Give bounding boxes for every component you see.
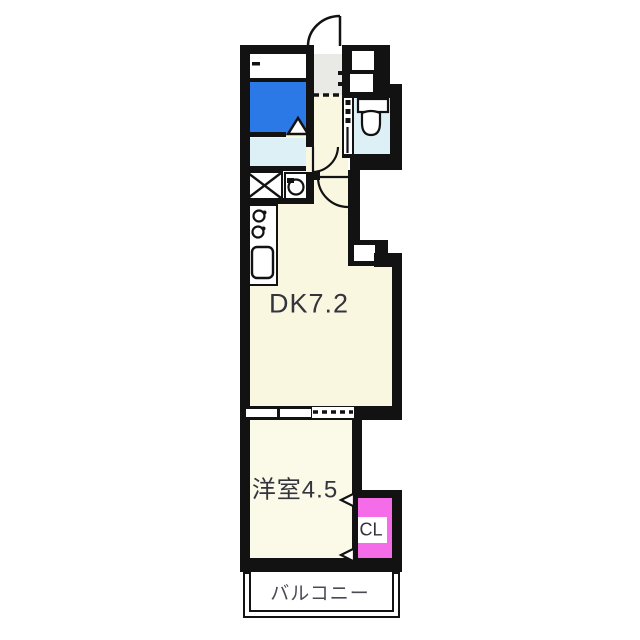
dk-floor-east (348, 266, 392, 408)
room-label-balcony: バルコニー (270, 579, 370, 606)
wall-toilet-bottom (350, 154, 402, 170)
kitchen-counter (248, 204, 278, 286)
floorplan-page: { "floorplan": { "labels": { "dk": "DK7.… (0, 0, 640, 640)
sliding-window-1 (246, 409, 277, 417)
wall-under-bath (250, 132, 286, 137)
wall-hall-west (306, 45, 314, 147)
storage-niche-2 (350, 74, 373, 92)
wall-washroom-shelf (246, 166, 306, 171)
wall-closet-left (352, 498, 358, 558)
wall-left (240, 45, 250, 572)
bathtub-icon (250, 82, 306, 134)
wall-east-mid (348, 170, 360, 242)
pipe-space-niche (354, 245, 375, 261)
wall-under-window (250, 78, 306, 82)
washroom-floor (250, 138, 306, 168)
room-label-closet: CL (359, 520, 382, 541)
wall-hall-south-stub (306, 172, 320, 180)
toilet-door-strip (344, 98, 352, 154)
washing-machine-icon (246, 171, 283, 200)
wall-bottom (240, 558, 402, 572)
entrance-door-icon (308, 16, 340, 46)
wall-dk-east (392, 260, 402, 410)
room-label-western: 洋室4.5 (252, 470, 338, 505)
storage-niche-1 (352, 51, 374, 70)
entrance-opening (312, 45, 343, 54)
sliding-window-2 (280, 409, 311, 417)
wall-kitchen-top (240, 198, 306, 204)
toilet-room-floor (354, 96, 392, 154)
dk-bottom-open-section (312, 407, 354, 418)
wall-western-east (352, 418, 362, 498)
bath-window (250, 54, 306, 78)
room-label-dk: DK7.2 (269, 289, 349, 320)
entry-floor (313, 54, 343, 95)
